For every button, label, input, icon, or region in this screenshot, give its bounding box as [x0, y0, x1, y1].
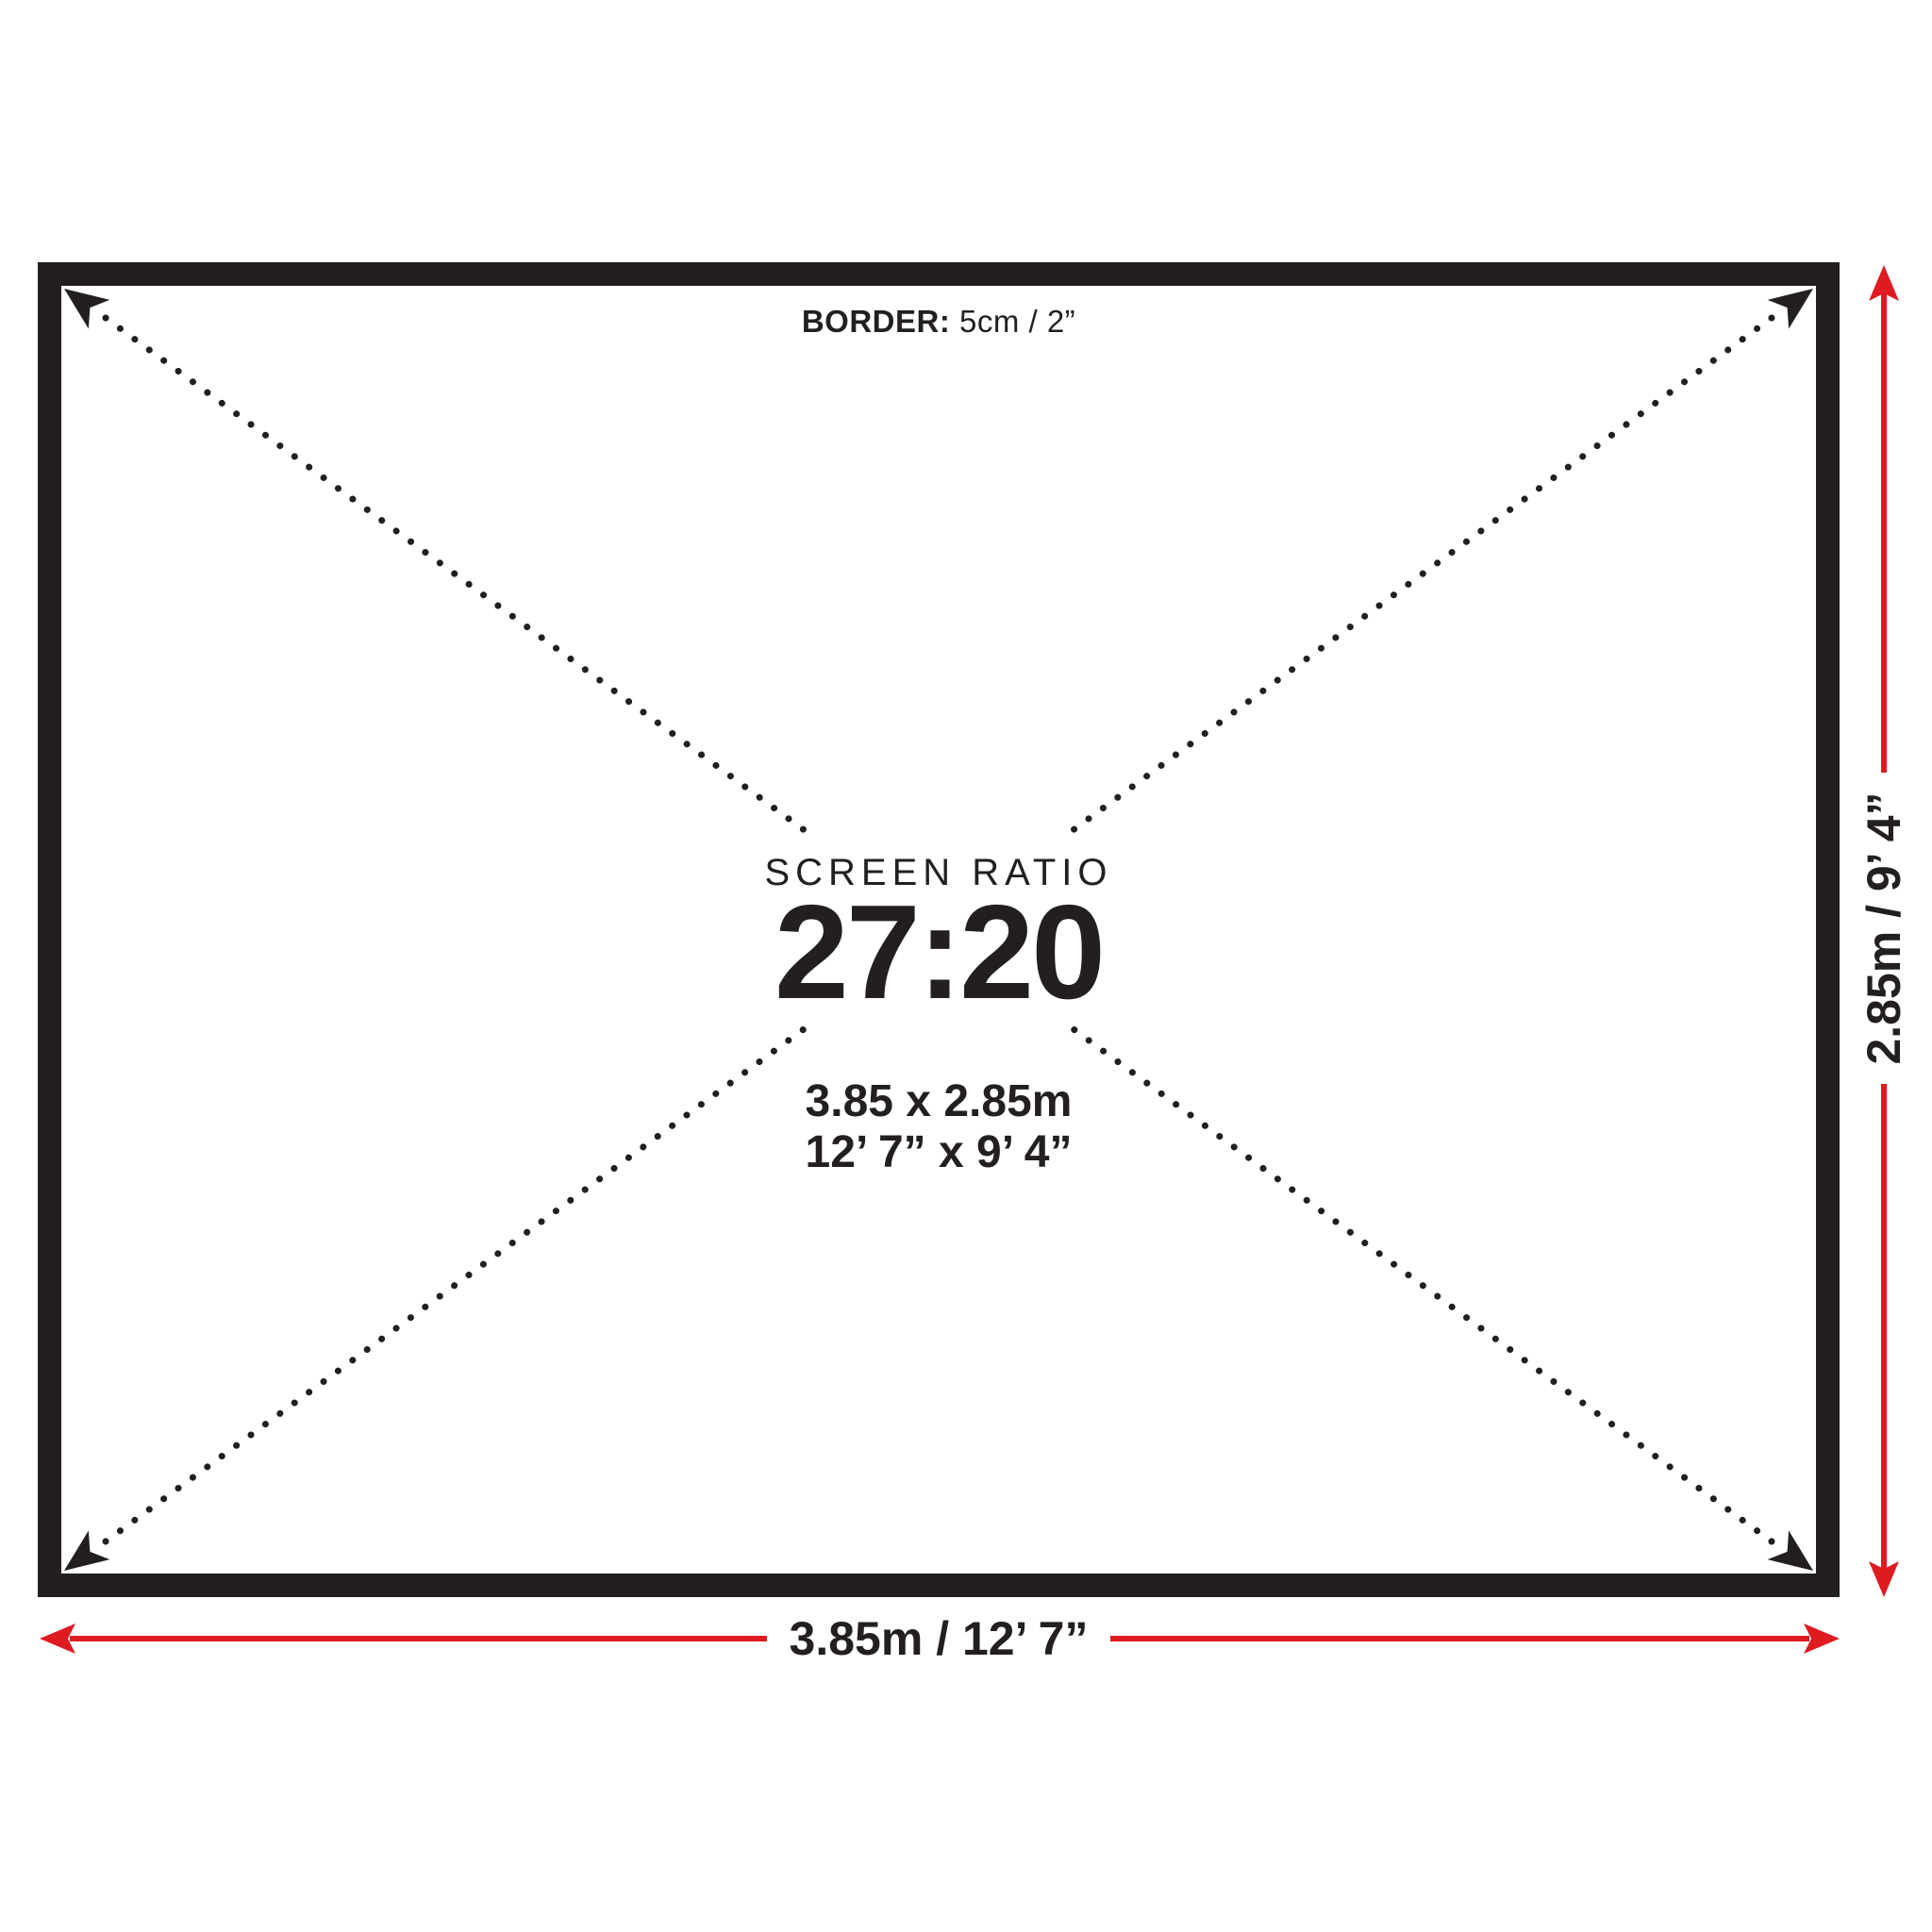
height-arrow-top-head-icon: [1869, 265, 1899, 301]
screen-size-metric: 3.85 x 2.85m: [38, 1075, 1840, 1128]
height-dimension-value: 2.85m / 9’ 4”: [1857, 773, 1910, 1083]
height-dimension-label: 2.85m / 9’ 4”: [1854, 730, 1914, 1126]
screen-size-imperial: 12’ 7” x 9’ 4”: [38, 1126, 1840, 1179]
width-dimension-value: 3.85m / 12’ 7”: [767, 1612, 1111, 1665]
height-arrow-bottom-head-icon: [1869, 1561, 1899, 1597]
border-note-label: BORDER:: [802, 304, 951, 339]
border-note: BORDER: 5cm / 2”: [38, 304, 1840, 340]
width-dimension-label: 3.85m / 12’ 7”: [38, 1609, 1840, 1668]
screen-ratio-value: 27:20: [38, 881, 1840, 1024]
border-note-value: 5cm / 2”: [950, 304, 1075, 339]
